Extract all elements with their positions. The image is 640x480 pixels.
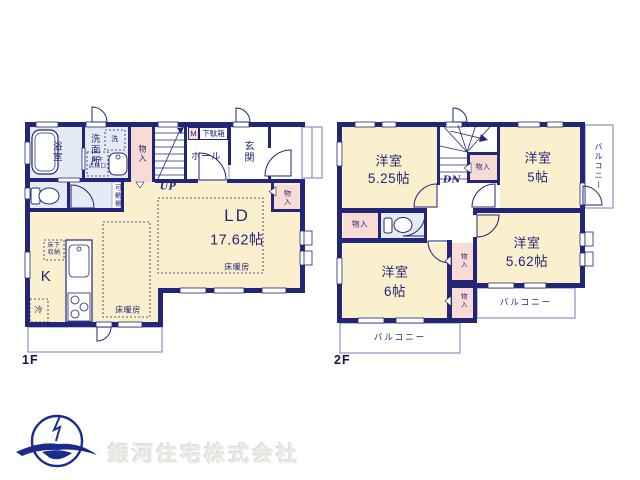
room-se-name-label: 洋室 bbox=[513, 235, 540, 250]
meter-box: M bbox=[188, 127, 199, 140]
room-ne-size-label: 5帖 bbox=[527, 169, 548, 184]
stairs-dn-label: DN bbox=[443, 174, 461, 185]
floorplan-drawing bbox=[0, 0, 640, 480]
company-name: 銀河住宅株式会社 bbox=[108, 438, 300, 468]
movable-shelf-label: 可動棚 bbox=[113, 184, 120, 208]
ld-size-label: 17.62帖 bbox=[210, 232, 264, 249]
kitchen-heating-label: 床暖房 bbox=[115, 305, 141, 314]
floor1-label: 1F bbox=[22, 353, 39, 367]
floor2-label: 2F bbox=[334, 353, 351, 367]
room-se-size-label: 5.62帖 bbox=[506, 254, 548, 270]
balcony-sw-label: バルコニー bbox=[374, 332, 426, 342]
shoebox-label: 下駄箱 bbox=[199, 127, 228, 140]
company-logo-icon bbox=[16, 416, 97, 466]
balcony-right-label: バルコニー bbox=[594, 142, 602, 190]
entrance-label: 玄関 bbox=[242, 141, 252, 164]
closet-upper-label: 物入 bbox=[138, 145, 146, 164]
floor1-plan bbox=[25, 107, 322, 352]
fridge-label: 冷 bbox=[35, 305, 44, 314]
room-nw-name-label: 洋室 bbox=[375, 153, 402, 168]
floorplan-page: 浴室 洗面所 洗 床下 点検口 物入 M 下駄箱 ホール 玄関 UP 可動棚 物… bbox=[0, 0, 640, 480]
bath-label: 浴室 bbox=[51, 141, 61, 163]
inspection-hatch-label: 床下 点検口 bbox=[88, 158, 106, 171]
kitchen-label: K bbox=[41, 268, 52, 286]
closet-hall-label: 物入 bbox=[476, 164, 491, 172]
floor2-plan bbox=[337, 108, 613, 353]
closet-ld-label: 物入 bbox=[284, 190, 291, 207]
stairs-up-label: UP bbox=[160, 181, 176, 192]
room-ne-name-label: 洋室 bbox=[524, 150, 551, 165]
closet-mid-label: 物入 bbox=[459, 253, 466, 269]
balcony-se-label: バルコニー bbox=[500, 297, 552, 307]
underfloor-storage-label: 床下 収納 bbox=[47, 243, 60, 257]
room-sw-size-label: 6帖 bbox=[384, 284, 406, 300]
hall-label: ホール bbox=[191, 151, 221, 162]
washer-label: 洗 bbox=[111, 136, 119, 144]
closet-low-label: 物入 bbox=[459, 293, 466, 309]
room-nw-size-label: 5.25帖 bbox=[368, 171, 410, 187]
ld-name-label: LD bbox=[224, 206, 250, 226]
room-sw-name-label: 洋室 bbox=[381, 264, 408, 279]
ld-heating-label: 床暖房 bbox=[224, 262, 250, 271]
closet-left-label: 物入 bbox=[352, 221, 368, 230]
